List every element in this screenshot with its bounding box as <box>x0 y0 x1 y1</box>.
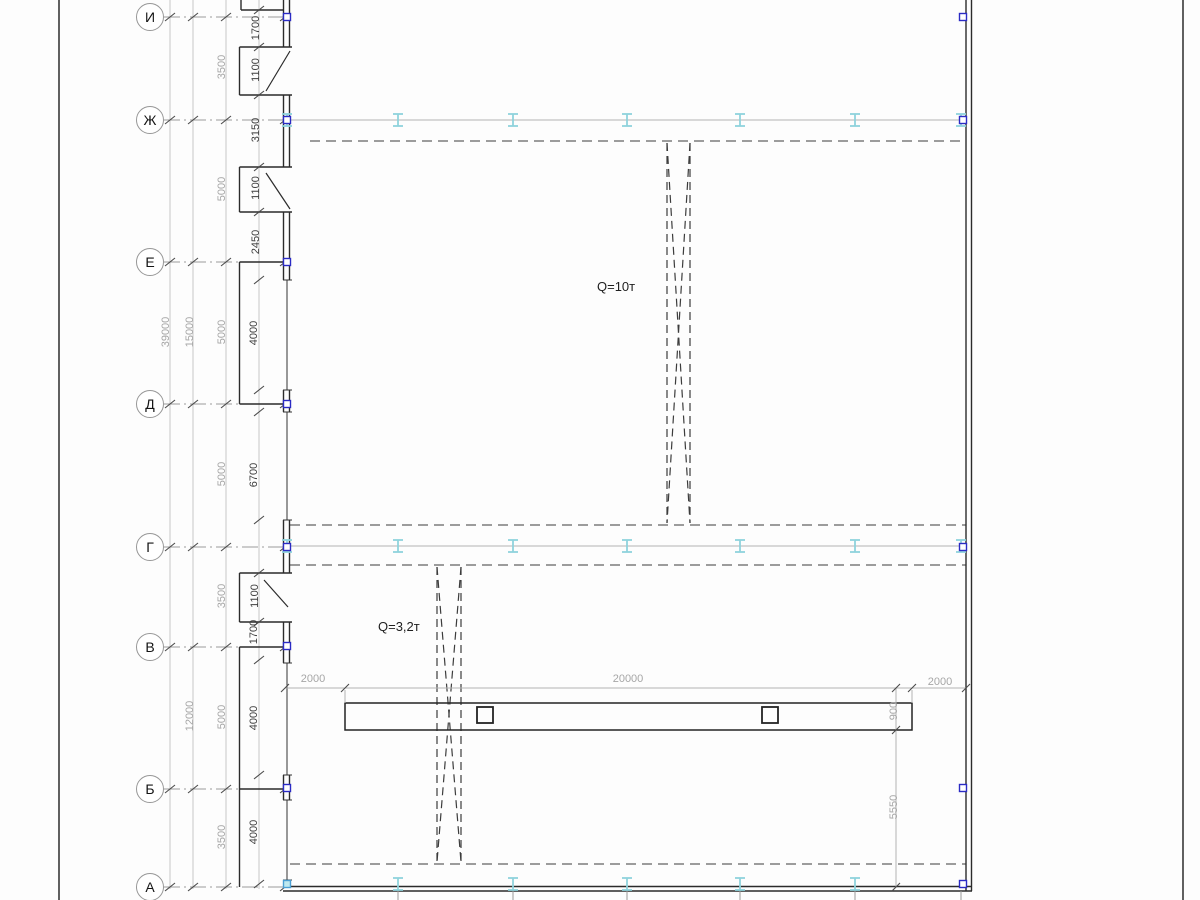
axis-bubble-d: Д <box>136 390 164 418</box>
axis-label: Г <box>146 539 154 555</box>
crane-zone-dashed-lines <box>290 141 966 864</box>
dim-right: 900 <box>887 681 901 741</box>
axis-bubble-b: Б <box>136 775 164 803</box>
axis-label: И <box>145 9 155 25</box>
crane-symbol-10t <box>667 143 690 523</box>
dim-spacing: 3500 <box>215 566 229 626</box>
crane-symbol-3-2t <box>437 567 461 862</box>
selection-grip-icon[interactable] <box>960 14 967 21</box>
dim-detail: 4000 <box>247 303 261 363</box>
axis-bubble-g: Г <box>136 533 164 561</box>
column-grid-stubs <box>398 891 961 900</box>
selection-grip-icon[interactable] <box>960 785 967 792</box>
dim-bottom: 2000 <box>910 675 970 689</box>
axis-label: Ж <box>144 112 157 128</box>
axis-bubble-a: А <box>136 873 164 900</box>
axis-label: Д <box>145 396 154 412</box>
selection-grip-icon[interactable] <box>284 643 291 650</box>
dim-sub: 12000 <box>183 686 197 746</box>
dim-spacing: 3500 <box>215 807 229 867</box>
perimeter-walls <box>283 0 972 891</box>
selection-grip-icon[interactable] <box>284 117 291 124</box>
crane-rail-ibeam-icon <box>508 878 518 890</box>
crane-capacity-label-3-2t: Q=3,2т <box>378 619 420 634</box>
dim-total: 39000 <box>159 302 173 362</box>
gate-leaf-lines <box>264 51 290 607</box>
crane-capacity-label-10t: Q=10т <box>597 279 635 294</box>
left-wall-openings <box>283 280 292 884</box>
selection-grip-icons[interactable] <box>284 14 967 888</box>
axis-label: А <box>145 879 154 895</box>
dim-bottom: 20000 <box>598 672 658 686</box>
crane-rail-ibeam-icon <box>850 878 860 890</box>
selection-grip-icon[interactable] <box>284 881 291 888</box>
axis-bubble-i: И <box>136 3 164 31</box>
dim-sub: 15000 <box>183 302 197 362</box>
axis-label: Е <box>145 254 154 270</box>
dim-spacing: 3500 <box>215 37 229 97</box>
dim-detail: 1700 <box>247 602 261 662</box>
selection-grip-icon[interactable] <box>284 785 291 792</box>
dim-bottom: 2000 <box>283 672 343 686</box>
beam-dimension-lines <box>285 688 966 887</box>
dim-detail: 4000 <box>247 802 261 862</box>
monorail-beam <box>345 703 912 730</box>
dim-detail: 3150 <box>249 100 263 160</box>
axis-label: Б <box>145 781 154 797</box>
crane-rail-ibeam-icon <box>622 878 632 890</box>
axis-bubble-e: Е <box>136 248 164 276</box>
crane-rail-ibeam-icon <box>735 878 745 890</box>
dim-detail: 1100 <box>249 40 263 100</box>
axis-bubble-v: В <box>136 633 164 661</box>
selection-grip-icon[interactable] <box>284 14 291 21</box>
dim-spacing: 5000 <box>215 687 229 747</box>
dim-spacing: 5000 <box>215 159 229 219</box>
selection-grip-icon[interactable] <box>284 544 291 551</box>
dim-spacing: 5000 <box>215 302 229 362</box>
dim-detail: 1100 <box>249 158 263 218</box>
axis-bubble-zh: Ж <box>136 106 164 134</box>
dimension-ticks <box>165 6 970 891</box>
dim-detail: 6700 <box>247 445 261 505</box>
crane-rail-ibeam-icons <box>282 114 966 890</box>
axis-label: В <box>145 639 154 655</box>
plan-linework <box>0 0 1200 900</box>
dim-right: 5550 <box>887 777 901 837</box>
selection-grip-icon[interactable] <box>284 401 291 408</box>
selection-grip-icon[interactable] <box>960 881 967 888</box>
selection-grip-icon[interactable] <box>960 544 967 551</box>
dim-detail: 2450 <box>249 212 263 272</box>
selection-grip-icon[interactable] <box>284 259 291 266</box>
crane-rail-lines <box>290 120 966 546</box>
crane-rail-ibeam-icon <box>393 878 403 890</box>
selection-grip-icon[interactable] <box>960 117 967 124</box>
dim-spacing: 5000 <box>215 444 229 504</box>
floor-plan-sheet: И Ж Е Д Г В Б А 39000 15000 12000 3500 5… <box>0 0 1200 900</box>
dim-detail: 4000 <box>247 688 261 748</box>
